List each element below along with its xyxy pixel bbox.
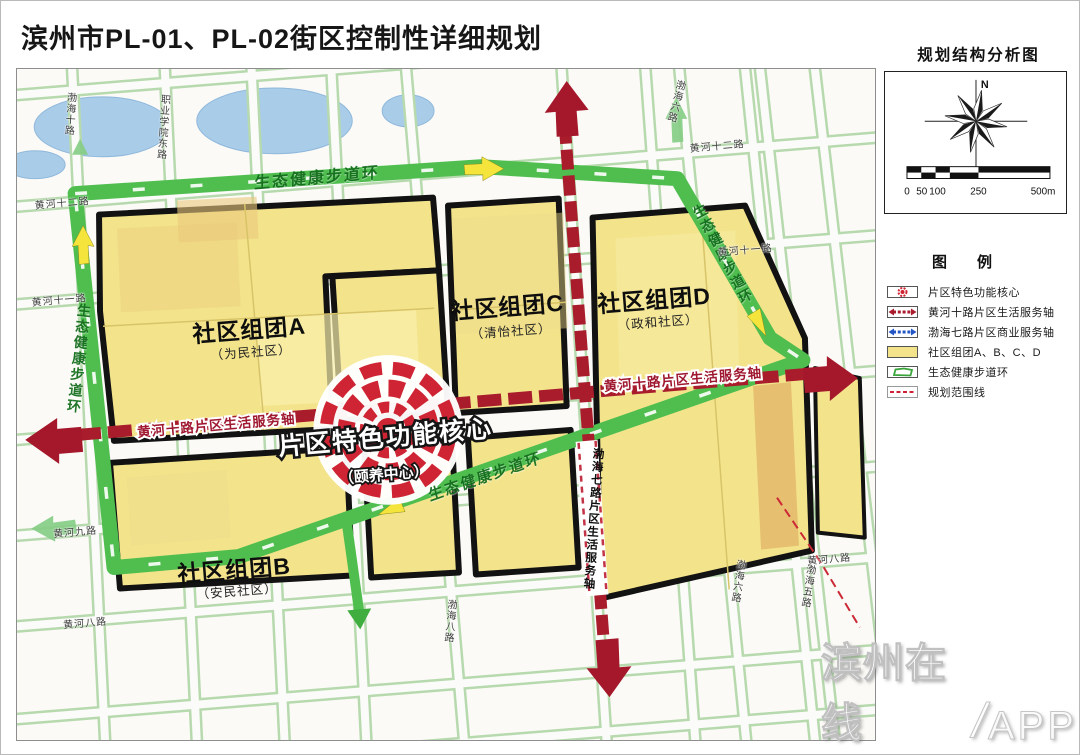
legend-item-greenway: 生态健康步道环 xyxy=(887,364,1077,380)
scale-bar xyxy=(907,167,1050,179)
legend-item-clusters: 社区组团A、B、C、D xyxy=(887,344,1077,360)
legend-item-core: 片区特色功能核心 xyxy=(887,284,1077,300)
svg-text:50: 50 xyxy=(916,186,927,197)
scale-labels: 0 50 100 250 500m xyxy=(904,186,1055,197)
diagram-title: 规划结构分析图 xyxy=(886,43,1071,65)
svg-text:0: 0 xyxy=(904,186,910,197)
svg-text:100: 100 xyxy=(929,186,946,197)
north-label: N xyxy=(981,79,989,91)
legend-label: 渤海七路片区商业服务轴 xyxy=(928,324,1055,340)
legend-label: 片区特色功能核心 xyxy=(928,284,1020,300)
commercial-axis-legend-icon xyxy=(887,326,918,338)
legend-item-life-axis: 黄河十路片区生活服务轴 xyxy=(887,304,1077,320)
legend-label: 生态健康步道环 xyxy=(928,364,1009,380)
page-title: 滨州市PL-01、PL-02街区控制性详细规划 xyxy=(21,17,542,56)
legend-label: 规划范围线 xyxy=(928,384,986,400)
legend-item-boundary: 规划范围线 xyxy=(887,384,1077,400)
svg-text:500m: 500m xyxy=(1031,186,1056,197)
legend-label: 社区组团A、B、C、D xyxy=(928,344,1041,360)
watermark-app: APP xyxy=(988,704,1077,749)
boundary-legend-icon xyxy=(887,386,918,398)
planning-sheet: 滨州市PL-01、PL-02街区控制性详细规划 规划结构分析图 xyxy=(0,0,1080,755)
planning-map: 黄河十路片区生活服务轴 黄河十路片区生活服务轴 片区特色功能核心 （颐养中心） … xyxy=(16,68,876,741)
legend-item-commercial-axis: 渤海七路片区商业服务轴 xyxy=(887,324,1077,340)
greenway-legend-icon xyxy=(887,366,918,378)
svg-text:250: 250 xyxy=(970,186,987,197)
legend-title: 图 例 xyxy=(887,251,1037,272)
legend-label: 黄河十路片区生活服务轴 xyxy=(928,304,1055,320)
legend: 图 例 片区特色功能核心 黄河十路片区生活服务轴 渤海七路片 xyxy=(887,251,1077,404)
watermark-slash: / xyxy=(973,694,986,749)
core-legend-icon xyxy=(887,286,918,298)
compass-box: N 0 50 100 250 500m xyxy=(884,71,1067,214)
road-label: 渤海十路 xyxy=(60,92,78,137)
compass-scale-canvas: N 0 50 100 250 500m xyxy=(885,72,1066,213)
cluster-legend-icon xyxy=(887,346,918,358)
life-axis-legend-icon xyxy=(887,306,918,318)
